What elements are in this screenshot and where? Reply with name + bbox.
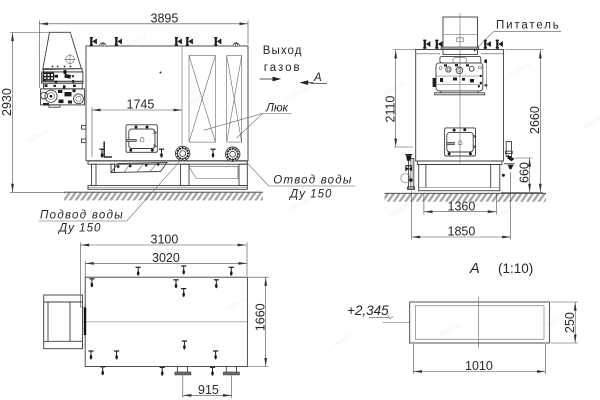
svg-text:3100: 3100 xyxy=(151,233,179,247)
svg-text:3895: 3895 xyxy=(151,12,179,26)
svg-text:1360: 1360 xyxy=(448,199,476,213)
svg-text:2660: 2660 xyxy=(528,106,542,134)
svg-text:1660: 1660 xyxy=(253,303,267,331)
svg-text:Подвод воды: Подвод воды xyxy=(40,210,124,222)
svg-text:1745: 1745 xyxy=(127,98,155,112)
svg-text:Питатель: Питатель xyxy=(496,20,561,32)
svg-text:Ду 150: Ду 150 xyxy=(288,189,332,201)
svg-text:+2,345: +2,345 xyxy=(347,303,389,318)
svg-text:1010: 1010 xyxy=(465,359,493,373)
svg-text:(1:10): (1:10) xyxy=(498,261,533,276)
svg-text:газов: газов xyxy=(264,62,302,74)
svg-text:250: 250 xyxy=(563,312,577,333)
svg-text:2930: 2930 xyxy=(0,88,14,116)
svg-text:Отвод воды: Отвод воды xyxy=(273,175,352,187)
svg-text:Выход: Выход xyxy=(263,45,303,57)
svg-text:А: А xyxy=(313,72,322,84)
svg-text:Люк: Люк xyxy=(265,102,289,114)
svg-text:660: 660 xyxy=(517,162,531,183)
svg-text:Ду 150: Ду 150 xyxy=(57,223,101,235)
svg-text:915: 915 xyxy=(198,383,219,397)
svg-text:А: А xyxy=(469,261,480,277)
svg-text:2110: 2110 xyxy=(383,96,397,123)
svg-text:3020: 3020 xyxy=(152,251,180,265)
svg-text:1850: 1850 xyxy=(448,225,476,239)
